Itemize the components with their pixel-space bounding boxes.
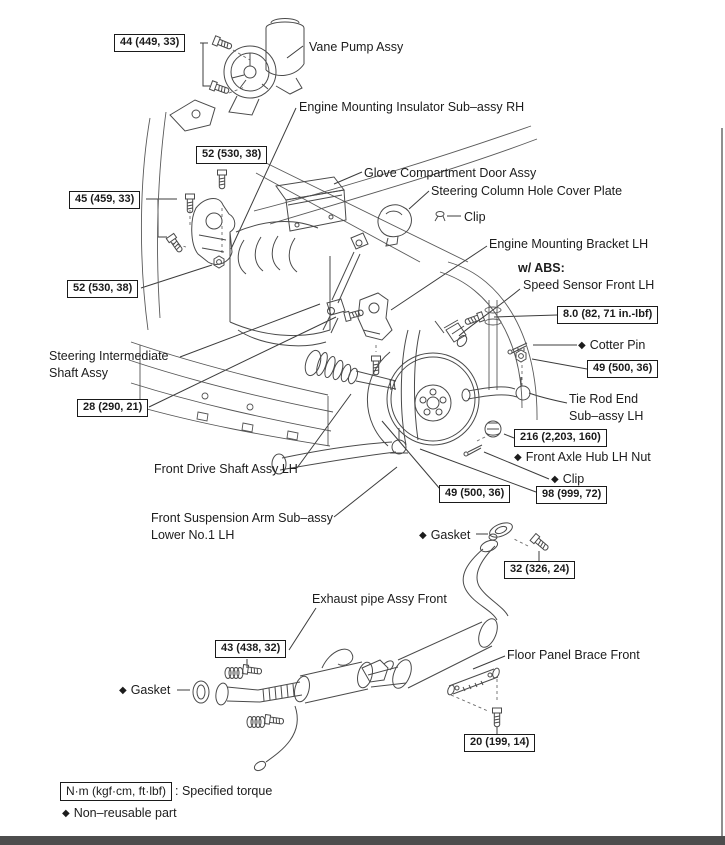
label-clip-upper: Clip [464,209,486,226]
label-column-cover: Steering Column Hole Cover Plate [431,183,622,200]
legend-torque-desc: : Specified torque [175,784,272,798]
non-reusable-icon: ◆ [578,340,586,351]
clip-lower-drawing [464,445,482,456]
non-reusable-icon: ◆ [119,685,127,696]
label-engine-mount-insulator-rh: Engine Mounting Insulator Sub–assy RH [299,99,524,116]
label-cotter-pin: ◆Cotter Pin [578,337,645,354]
label-abs-prefix: w/ ABS: [518,261,565,275]
label-tie-rod-end: Tie Rod End Sub–assy LH [569,391,643,425]
torque-vane-pump: 44 (449, 33) [114,34,185,52]
non-reusable-icon: ◆ [514,452,522,463]
label-exhaust-pipe: Exhaust pipe Assy Front [312,591,447,608]
legend-torque-unit-box: N·m (kgf·cm, ft·lbf) [60,782,172,801]
label-gasket-upper: ◆Gasket [419,527,470,544]
label-drive-shaft: Front Drive Shaft Assy LH [154,461,298,478]
tie-rod-drawing [462,377,530,401]
label-glove-door: Glove Compartment Door Assy [364,165,536,182]
torque-mount-side: 45 (459, 33) [69,191,140,209]
label-clip-lower: ◆Clip [551,471,584,488]
label-vane-pump: Vane Pump Assy [309,39,403,56]
hub-disc-drawing [367,320,479,446]
vane-pump-drawing [224,19,304,116]
label-floor-brace: Floor Panel Brace Front [507,647,640,664]
service-manual-diagram-page: 44 (449, 33) 52 (530, 38) 45 (459, 33) 5… [0,0,725,845]
floor-brace-drawing [446,667,500,695]
torque-susp-arm: 49 (500, 36) [439,485,510,503]
torque-exhaust-upper: 32 (326, 24) [504,561,575,579]
page-right-border [721,128,723,836]
torque-speed-sensor: 8.0 (82, 71 in.-lbf) [557,306,658,324]
label-engine-mount-bracket-lh: Engine Mounting Bracket LH [489,236,648,253]
speed-sensor-drawing [435,321,469,348]
label-steering-shaft: Steering Intermediate Shaft Assy [49,348,169,382]
label-suspension-arm: Front Suspension Arm Sub–assy Lower No.1… [151,510,333,544]
engine-mount-bracket-drawing [358,293,392,340]
page-bottom-bar [0,836,725,845]
torque-floor-brace: 20 (199, 14) [464,734,535,752]
torque-intermediate-shaft: 28 (290, 21) [77,399,148,417]
label-speed-sensor-group: w/ ABS: Speed Sensor Front LH [518,260,654,294]
legend-non-reusable: ◆Non–reusable part [62,806,177,820]
clip-upper-drawing [435,212,445,222]
column-cover-drawing [378,205,411,246]
castle-nut-drawing [516,348,526,362]
torque-mount-upper: 52 (530, 38) [196,146,267,164]
drive-shaft-drawing [302,348,396,390]
label-axle-hub-nut: ◆Front Axle Hub LH Nut [514,449,651,466]
label-speed-sensor: Speed Sensor Front LH [518,278,654,292]
non-reusable-icon: ◆ [419,530,427,541]
legend-torque: N·m (kgf·cm, ft·lbf): Specified torque [60,782,272,801]
non-reusable-icon: ◆ [62,808,70,819]
hub-nut-drawing [485,421,501,437]
label-gasket-lower: ◆Gasket [119,682,170,699]
torque-ball-joint: 98 (999, 72) [536,486,607,504]
torque-hub-nut: 216 (2,203, 160) [514,429,607,447]
non-reusable-icon: ◆ [551,474,559,485]
torque-mount-lower: 52 (530, 38) [67,280,138,298]
torque-tie-rod: 49 (500, 36) [587,360,658,378]
torque-exhaust-front: 43 (438, 32) [215,640,286,658]
